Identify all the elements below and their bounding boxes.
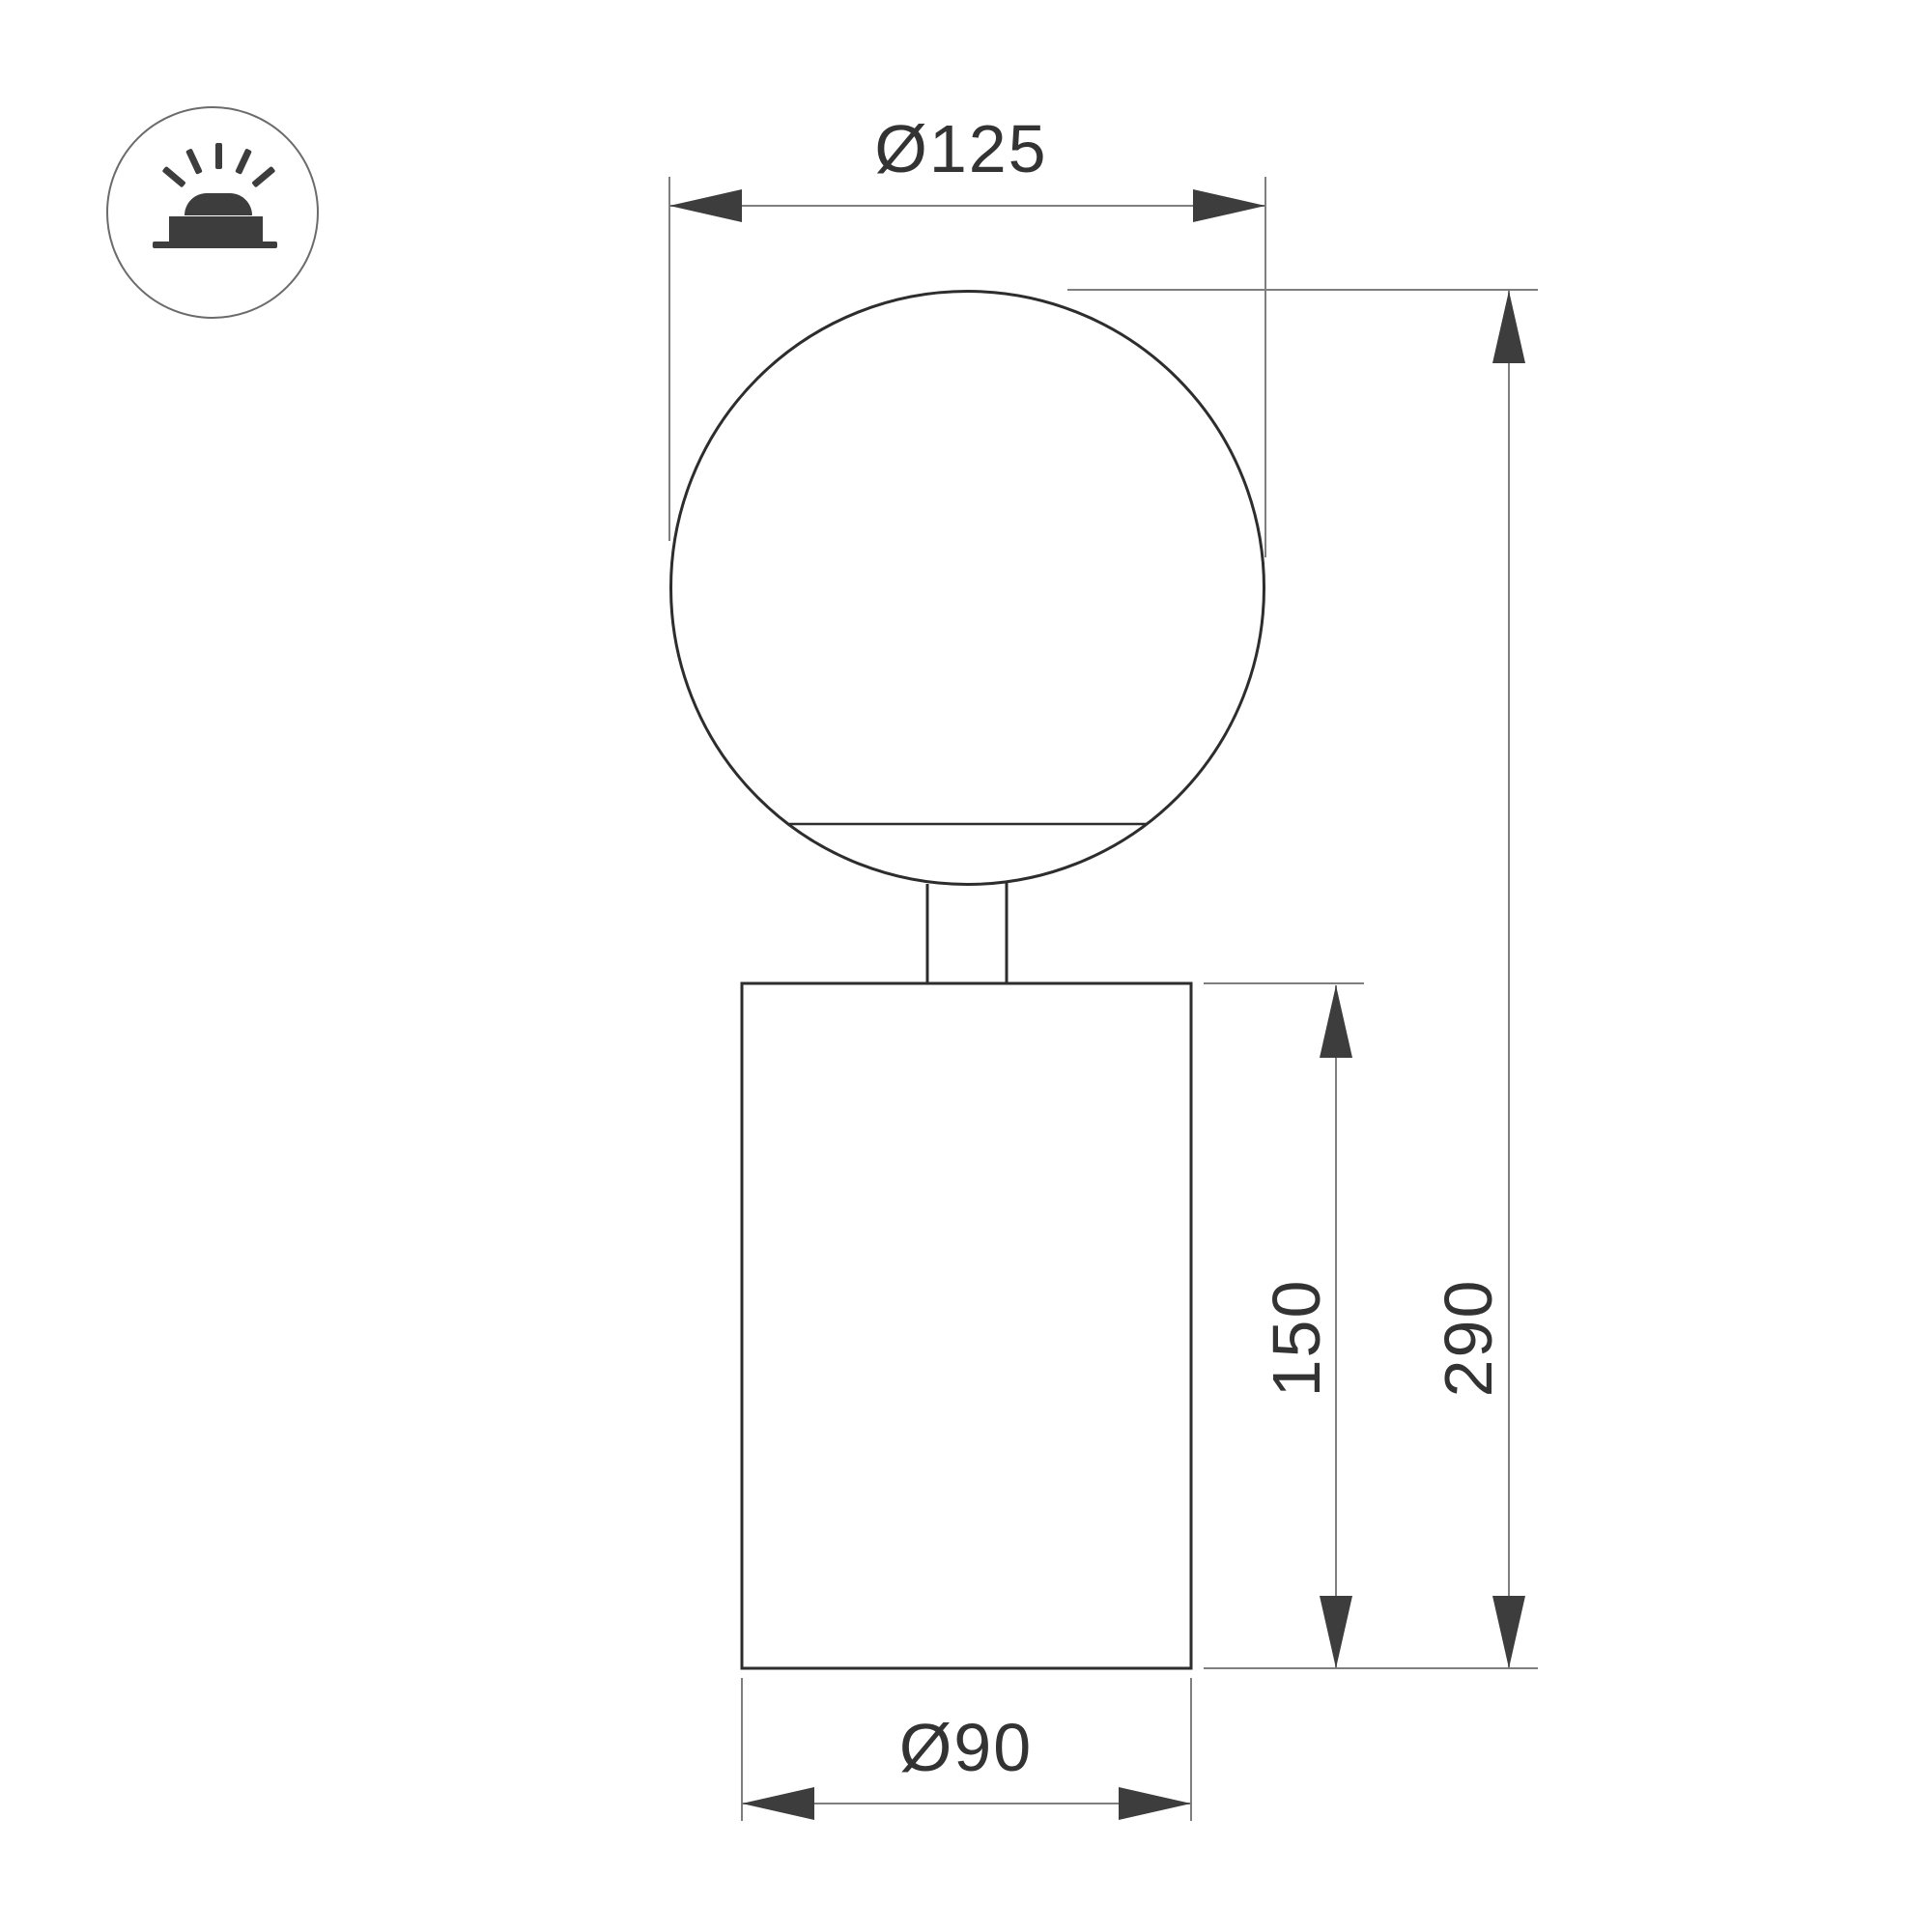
arrow-left-icon	[742, 1787, 814, 1820]
arrow-left-icon	[669, 189, 742, 222]
lamp-dimension-drawing: Ø125 290 150 Ø90	[0, 0, 1932, 1932]
body-height-label: 150	[1259, 1279, 1334, 1398]
technical-drawing-page: Ø125 290 150 Ø90	[0, 0, 1932, 1932]
arrow-up-icon	[1320, 985, 1352, 1058]
arrow-down-icon	[1492, 1596, 1525, 1668]
body-diameter-label: Ø90	[899, 1710, 1033, 1785]
total-height-label: 290	[1431, 1279, 1506, 1398]
arrow-right-icon	[1193, 189, 1265, 222]
globe-diameter-label: Ø125	[874, 111, 1047, 186]
body-outline	[742, 983, 1191, 1668]
globe-outline	[671, 292, 1264, 885]
arrow-up-icon	[1492, 291, 1525, 363]
arrow-right-icon	[1119, 1787, 1191, 1820]
arrow-down-icon	[1320, 1596, 1352, 1668]
